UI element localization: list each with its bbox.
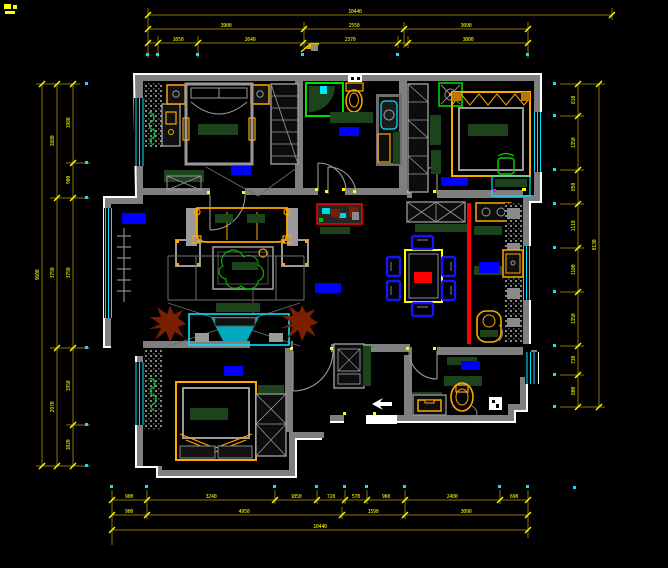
dim-text: 1050 [173,37,184,43]
speaker [195,333,209,342]
dim-text: 2880 [50,135,56,146]
room-label [231,166,251,175]
dim-text: 8130 [592,239,598,250]
room-label [479,262,499,273]
dim-text: 1020 [66,439,72,450]
shelf [431,150,441,174]
shower-head-icon [320,86,327,94]
floorplan-svg: 10440 3900 2550 3090 1050 2640 2370 3000… [0,0,668,568]
table-centerpiece [414,272,432,283]
dim-text: 3900 [221,23,232,29]
dim-text: 1100 [571,264,577,275]
dim-text: 720 [327,494,335,500]
room-label [441,177,468,186]
room-label [224,366,243,376]
laundry-cabinet [376,94,402,166]
dim-text: 3090 [461,509,472,515]
dim-text: 690 [510,494,518,500]
shoe-cabinet [334,344,364,388]
dim-text: 2640 [245,37,256,43]
shelf [430,115,441,145]
axis-marker-glyphs [4,4,17,14]
dim-text: 10440 [313,524,327,530]
dim-text: 1980 [66,117,72,128]
dim-text: 1050 [291,494,302,500]
tv [215,318,255,326]
wardrobe [271,84,298,164]
room-label [461,361,480,370]
room-label [122,213,146,224]
dim-text: 2400 [447,494,458,500]
dim-text: 900 [125,509,133,515]
dresser [162,104,180,146]
dim-text: 1110 [571,220,577,231]
dim-text: 960 [382,494,390,500]
dim-text: 1350 [571,137,577,148]
media-shelf [216,303,260,312]
dim-text: 4950 [239,509,250,515]
wardrobe [408,84,428,192]
appliance-icon [489,397,502,410]
washing-machine [381,101,397,129]
sofa-pillow [215,214,233,223]
room-label [315,283,341,293]
floorplan-canvas: 10440 3900 2550 3090 1050 2640 2370 3000… [0,0,668,568]
nightstand [251,85,269,104]
dim-text: 900 [66,176,72,184]
dim-text: 1950 [66,380,72,391]
dim-text: 570 [352,494,360,500]
decor-hatch-panel [144,350,162,430]
red-partition-line [467,203,471,344]
dim-text: 3750 [50,267,56,278]
dim-text: 9600 [35,269,41,280]
dim-text: 800 [571,387,577,395]
wardrobe [256,394,286,456]
cabinet-side-panel [363,346,371,386]
dim-text: 2550 [349,23,360,29]
storage-cabinet [407,202,465,222]
shelf [320,227,350,234]
dim-text: 2370 [345,37,356,43]
dim-text: 1590 [368,509,379,515]
dim-text: 850 [571,183,577,191]
room-label [339,127,359,136]
dim-text: 810 [571,96,577,104]
shelf [415,224,467,232]
dim-text: 900 [125,494,133,500]
sofa-pillow [247,214,265,223]
cabinet [413,395,446,415]
door-mat [366,415,397,424]
speaker [269,333,283,342]
dim-text: 2970 [50,401,56,412]
dim-text: 10440 [348,9,362,15]
nightstand [167,85,185,104]
dim-text: 3750 [66,267,72,278]
vanity-counter [330,112,373,123]
counter [474,226,502,235]
shelf [258,385,284,393]
dim-text: 1350 [571,313,577,324]
dining-table [405,250,442,302]
dim-text: 3090 [461,23,472,29]
sink [503,250,523,277]
console-table [317,204,362,224]
dim-text: 3000 [463,37,474,43]
dim-text: 3240 [206,494,217,500]
dim-text: 730 [571,356,577,364]
